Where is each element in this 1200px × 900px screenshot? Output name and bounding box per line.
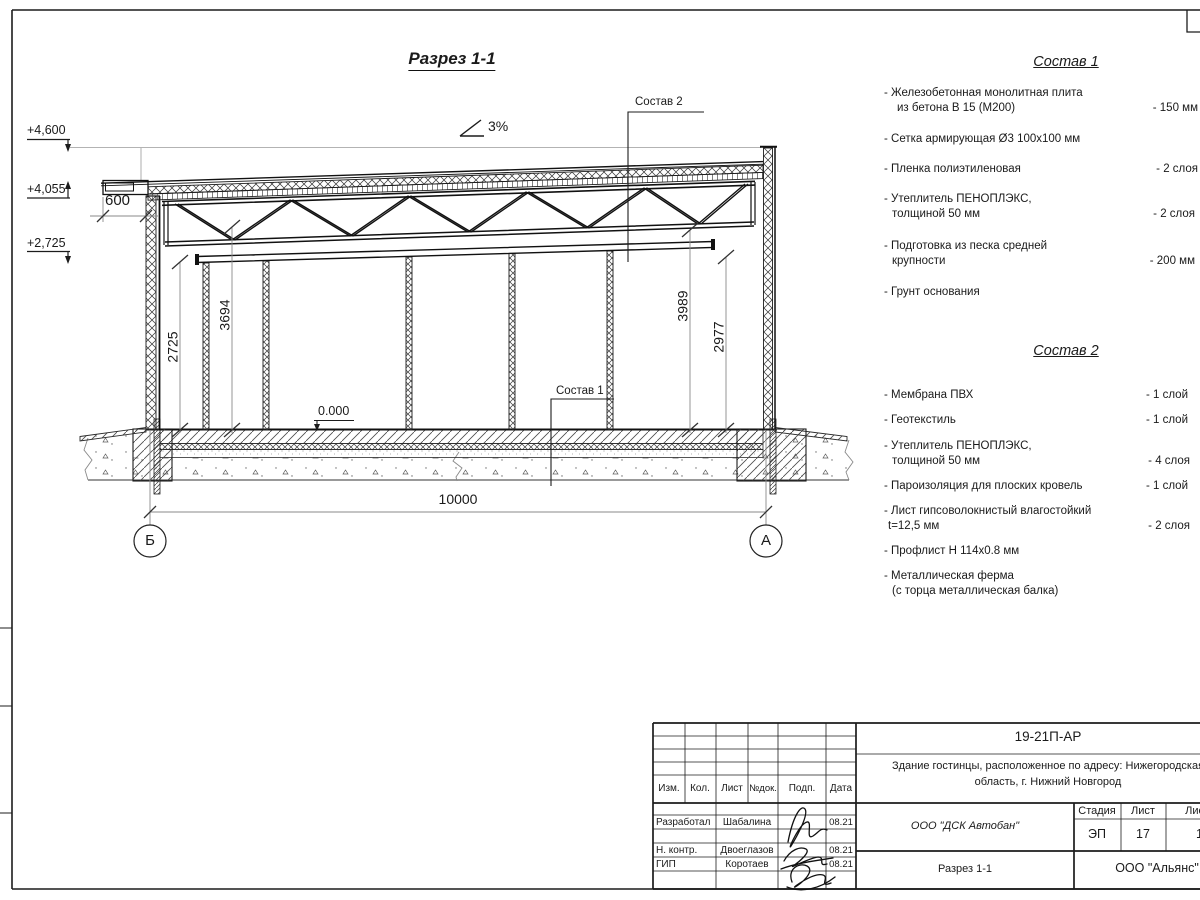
sostav2-item-line2: t=12,5 мм bbox=[888, 520, 939, 533]
sostav2-item: - Профлист Н 114х0.8 мм bbox=[884, 545, 1019, 558]
sostav2-item: - Пароизоляция для плоских кровель bbox=[884, 480, 1083, 493]
sostav2-item-value: - 1 слой bbox=[1146, 389, 1188, 402]
sostav1-item-value: - 2 слоя bbox=[1156, 163, 1198, 176]
axis-bubble-b: Б bbox=[145, 533, 155, 550]
col-header-ndok: №док. bbox=[749, 784, 777, 794]
leader-label-sostav1: Состав 1 bbox=[556, 385, 604, 398]
sostav1-item-line2: толщиной 50 мм bbox=[892, 208, 980, 221]
dim-2725-label: 2725 bbox=[165, 331, 180, 362]
sostav1-item-line2: из бетона В 15 (М200) bbox=[897, 102, 1015, 115]
left-wall bbox=[146, 196, 160, 430]
dim-3989-label: 3989 bbox=[675, 290, 690, 321]
sostav1-item-value: - 150 мм bbox=[1153, 102, 1198, 115]
right-wall bbox=[760, 147, 777, 430]
dim-2977-label: 2977 bbox=[711, 321, 726, 352]
sostav2-item: - Металлическая ферма bbox=[884, 570, 1014, 583]
date-developer: 08.21 bbox=[829, 818, 853, 828]
sostav2-item-line2: (с торца металлическая балка) bbox=[892, 585, 1058, 598]
sostav1-title: Состав 1 bbox=[1033, 55, 1098, 71]
customer-company: ООО "Альянс" bbox=[1115, 862, 1199, 876]
elevation-4055: +4,055 bbox=[27, 183, 66, 197]
sostav2-item: - Лист гипсоволокнистый влагостойкий bbox=[884, 505, 1091, 518]
elevation-2725: +2,725 bbox=[27, 237, 66, 251]
sheet-title: Разрез 1-1 bbox=[938, 863, 992, 875]
dim-3694-label: 3694 bbox=[217, 299, 232, 330]
roof-deck bbox=[101, 162, 763, 201]
sostav2-item-value: - 4 слоя bbox=[1148, 455, 1190, 468]
leader-label-sostav2: Состав 2 bbox=[635, 96, 683, 109]
sostav2-item-value: - 2 слоя bbox=[1148, 520, 1190, 533]
sostav1-item: - Грунт основания bbox=[884, 286, 980, 299]
col-header-podp: Подп. bbox=[789, 783, 816, 794]
axis-bubble-a: А bbox=[761, 533, 771, 550]
drawing-sheet: Разрез 1-1 3% Состав 2 Состав 1 0.000 +4… bbox=[0, 0, 1200, 900]
dim-10000-label: 10000 bbox=[439, 492, 478, 507]
dim-600-label: 600 bbox=[105, 193, 130, 210]
name-gip: Коротаев bbox=[725, 859, 768, 870]
document-code: 19-21П-АР bbox=[1015, 730, 1082, 745]
drawing-title: Разрез 1-1 bbox=[408, 50, 495, 71]
sheet-header: Лист bbox=[1131, 805, 1155, 817]
stage-value: ЭП bbox=[1088, 828, 1106, 842]
floor-layers bbox=[146, 430, 777, 458]
sostav2-item-value: - 1 слой bbox=[1146, 414, 1188, 427]
sostav1-item: - Подготовка из песка средней bbox=[884, 240, 1047, 253]
role-gip: ГИП bbox=[656, 859, 676, 870]
sostav1-item-value: - 200 мм bbox=[1150, 255, 1195, 268]
sostav1-item: - Сетка армирующая Ø3 100х100 мм bbox=[884, 133, 1080, 146]
date-gip: 08.21 bbox=[829, 860, 853, 870]
col-header-list: Лист bbox=[721, 783, 743, 794]
sostav1-item: - Железобетонная монолитная плита bbox=[884, 87, 1083, 100]
sheets-header: Листов bbox=[1185, 805, 1200, 817]
signatures bbox=[781, 808, 835, 890]
role-developer: Разработал bbox=[656, 817, 710, 828]
zero-level-label: 0.000 bbox=[318, 405, 349, 419]
role-ncontrol: Н. контр. bbox=[656, 845, 697, 856]
project-name-line2: область, г. Нижний Новгород bbox=[975, 776, 1122, 788]
slope-symbol bbox=[460, 120, 484, 136]
slope-label: 3% bbox=[488, 119, 508, 134]
contractor-org: ООО "ДСК Автобан" bbox=[911, 820, 1019, 832]
project-name-line1: Здание гостинцы, расположенное по адресу… bbox=[892, 760, 1200, 772]
name-developer: Шабалина bbox=[723, 817, 771, 828]
elevation-4600: +4,600 bbox=[27, 124, 66, 138]
sostav1-item-line2: крупности bbox=[892, 255, 945, 268]
col-header-data: Дата bbox=[830, 783, 852, 794]
sostav1-item: - Утеплитель ПЕНОПЛЭКС, bbox=[884, 193, 1032, 206]
sostav1-item: - Пленка полиэтиленовая bbox=[884, 163, 1021, 176]
stage-header: Стадия bbox=[1078, 805, 1116, 817]
sostav2-item: - Мембрана ПВХ bbox=[884, 389, 973, 402]
col-header-izm: Изм. bbox=[658, 783, 679, 794]
sostav2-title: Состав 2 bbox=[1033, 344, 1098, 360]
sostav2-item: - Утеплитель ПЕНОПЛЭКС, bbox=[884, 440, 1032, 453]
sostav1-item-value: - 2 слоя bbox=[1153, 208, 1195, 221]
date-ncontrol: 08.21 bbox=[829, 846, 853, 856]
name-ncontrol: Двоеглазов bbox=[720, 845, 773, 856]
sostav2-item-value: - 1 слой bbox=[1146, 480, 1188, 493]
sheets-total: 18 bbox=[1196, 828, 1200, 842]
col-header-kol: Кол. bbox=[690, 783, 710, 794]
sostav2-item: - Геотекстиль bbox=[884, 414, 956, 427]
sostav2-item-line2: толщиной 50 мм bbox=[892, 455, 980, 468]
sheet-number: 17 bbox=[1136, 828, 1150, 842]
